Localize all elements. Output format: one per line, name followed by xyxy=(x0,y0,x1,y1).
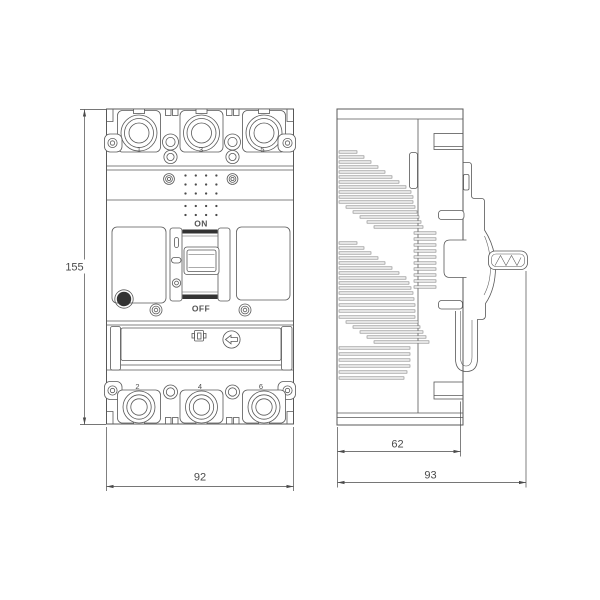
terminal-1-label: 1 xyxy=(137,145,141,154)
right-cover-pad xyxy=(237,227,291,300)
off-label: OFF xyxy=(192,304,210,314)
dim-width-label: 92 xyxy=(194,472,206,484)
terminal-2-label: 2 xyxy=(135,382,139,391)
bottom-terminal-bosses xyxy=(118,390,286,424)
drawing-canvas: 1 3 5 ON OFF xyxy=(0,0,600,600)
side-tab-lower xyxy=(439,301,463,310)
toggle-handle xyxy=(184,247,219,275)
dim-depth-label: 62 xyxy=(391,439,403,451)
handle-notch xyxy=(444,240,467,278)
terminal-3-label: 3 xyxy=(199,145,203,154)
terminal-5-label: 5 xyxy=(260,145,264,154)
side-view xyxy=(337,109,528,425)
toggle-rail-right xyxy=(218,228,230,301)
dim-height-label: 155 xyxy=(65,262,83,274)
terminal-6-label: 6 xyxy=(259,382,263,391)
front-view: 1 3 5 ON OFF xyxy=(105,109,296,424)
terminal-4-label: 4 xyxy=(198,382,202,391)
dim-total-depth-label: 93 xyxy=(424,470,436,482)
left-cover-pad xyxy=(112,227,166,303)
on-label: ON xyxy=(194,219,208,229)
side-tab-upper xyxy=(439,211,465,220)
dimension-drawing: 1 3 5 ON OFF xyxy=(0,0,600,600)
side-toggle-handle xyxy=(489,251,528,270)
test-button xyxy=(117,292,131,306)
toggle-rail-left xyxy=(170,228,182,301)
